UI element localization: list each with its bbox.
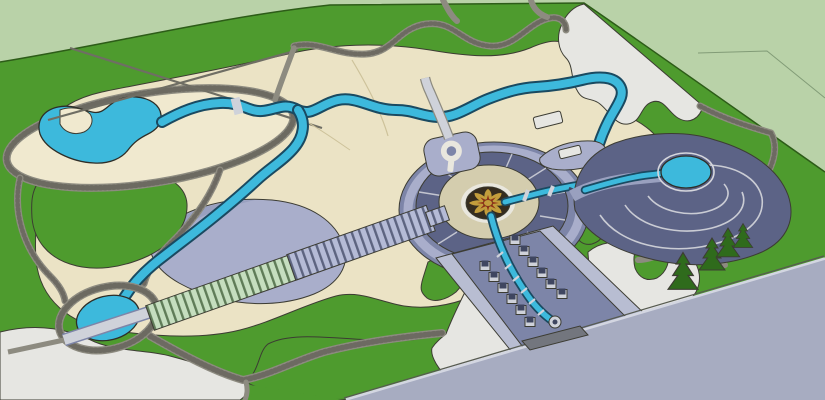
planter xyxy=(498,283,508,293)
park-render-canvas xyxy=(0,0,825,400)
planter xyxy=(519,246,529,256)
planter xyxy=(528,257,538,267)
planter xyxy=(557,289,567,299)
planter xyxy=(507,294,517,304)
south-loop-stub xyxy=(245,382,247,400)
planter xyxy=(537,268,547,278)
spiral-pond xyxy=(661,156,711,188)
mandala-center xyxy=(484,200,492,206)
planter xyxy=(489,272,499,282)
planter xyxy=(480,261,490,271)
model-viewport[interactable] xyxy=(0,0,825,400)
planter xyxy=(510,235,520,245)
planter xyxy=(525,317,535,327)
channel-fountain-center xyxy=(553,320,558,325)
planter xyxy=(546,279,556,289)
stream-bridge xyxy=(235,98,239,114)
planter xyxy=(516,305,526,315)
